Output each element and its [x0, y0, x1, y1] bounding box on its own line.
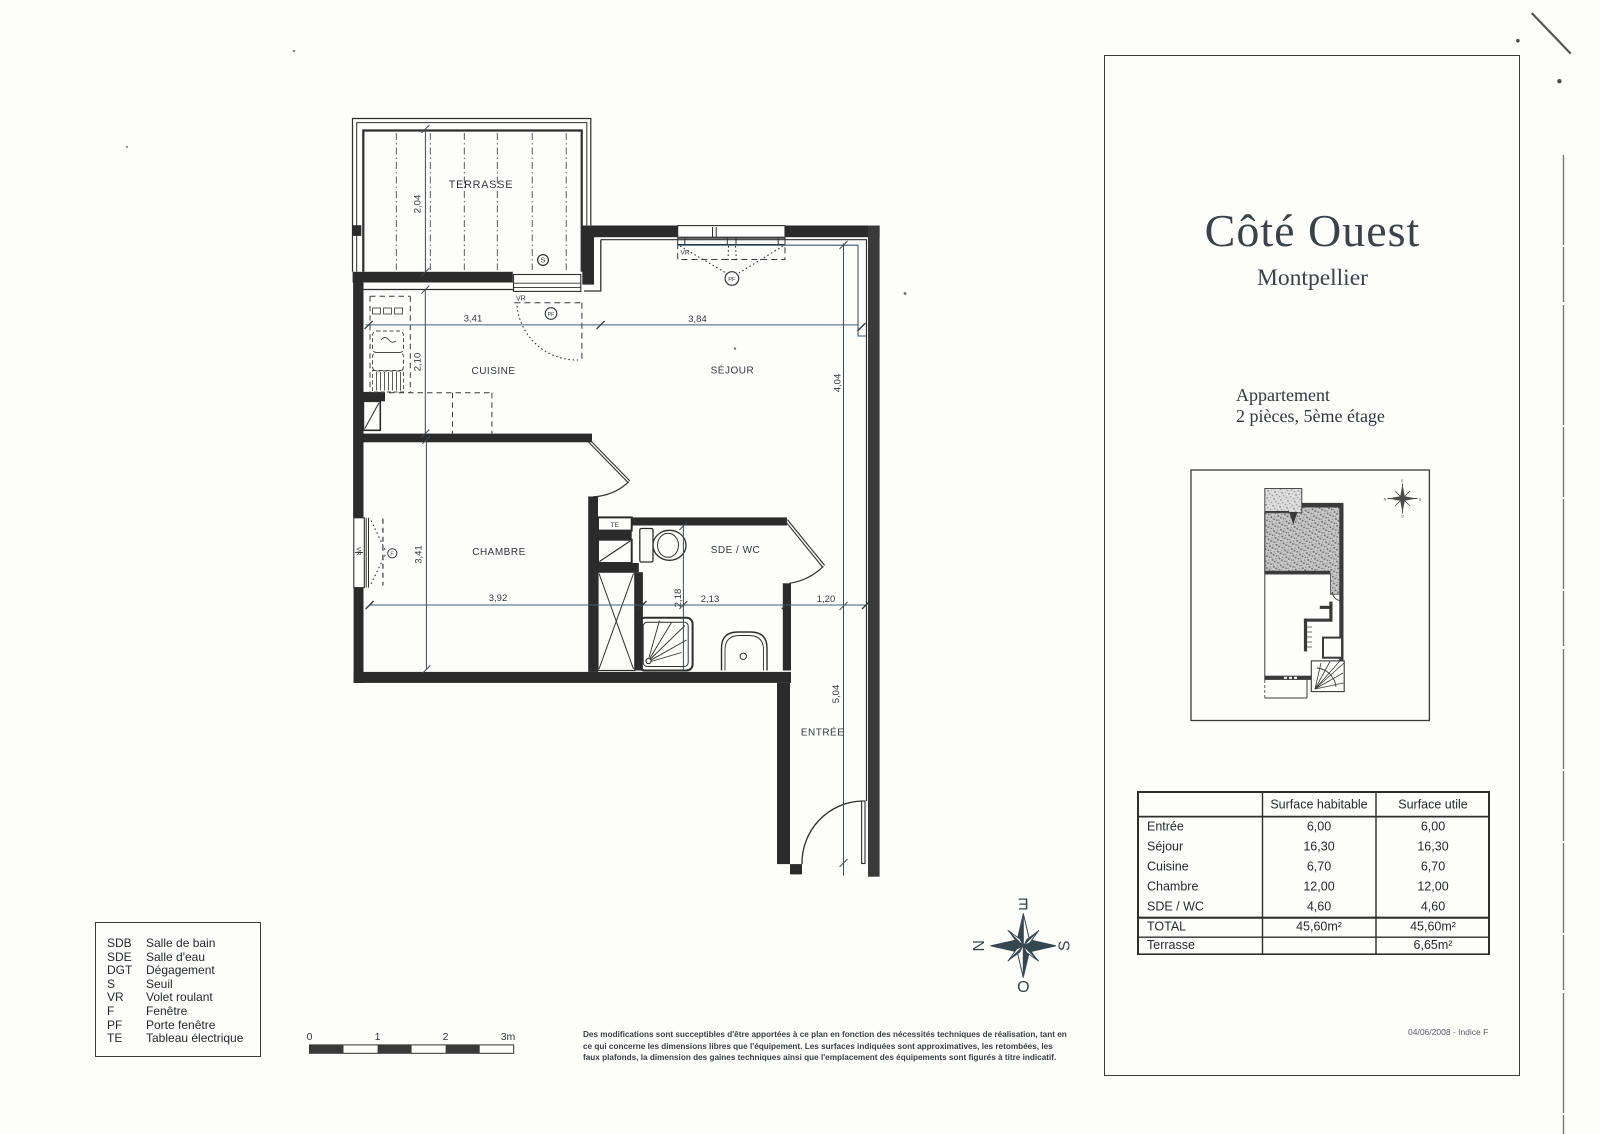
svg-text:S: S [1057, 940, 1074, 951]
svg-text:VR: VR [516, 296, 526, 303]
svg-text:12,00: 12,00 [1303, 880, 1334, 894]
svg-text:0: 0 [307, 1031, 313, 1043]
svg-text:6,00: 6,00 [1307, 820, 1331, 834]
svg-text:N: N [969, 940, 986, 952]
svg-text:Surface utile: Surface utile [1398, 798, 1468, 812]
svg-text:2,18: 2,18 [673, 589, 684, 608]
svg-text:F: F [390, 552, 393, 558]
svg-text:Chambre: Chambre [1147, 880, 1198, 894]
svg-text:45,60m²: 45,60m² [1410, 920, 1456, 934]
svg-text:6,70: 6,70 [1307, 860, 1331, 874]
svg-text:TOTAL: TOTAL [1147, 920, 1186, 934]
svg-text:CHAMBRE: CHAMBRE [472, 547, 526, 558]
svg-text:S: S [541, 258, 546, 265]
svg-text:6,65m²: 6,65m² [1414, 938, 1453, 952]
svg-text:5,04: 5,04 [831, 685, 842, 704]
svg-text:12,00: 12,00 [1417, 880, 1448, 894]
svg-text:1: 1 [375, 1031, 381, 1043]
svg-text:PF: PF [728, 277, 736, 283]
svg-text:Terrasse: Terrasse [1147, 938, 1195, 952]
svg-text:6,00: 6,00 [1421, 820, 1445, 834]
svg-text:3,92: 3,92 [489, 593, 508, 604]
svg-text:2,10: 2,10 [412, 353, 423, 372]
svg-text:2,04: 2,04 [413, 195, 424, 214]
svg-text:3,41: 3,41 [414, 545, 425, 564]
svg-text:TE: TE [611, 522, 620, 529]
svg-text:4,60: 4,60 [1307, 900, 1331, 914]
svg-text:16,30: 16,30 [1303, 840, 1334, 854]
svg-text:SDE / WC: SDE / WC [711, 545, 761, 556]
svg-text:4,04: 4,04 [833, 374, 844, 393]
svg-text:Séjour: Séjour [1147, 840, 1183, 854]
svg-text:3,84: 3,84 [688, 314, 707, 325]
svg-text:3,41: 3,41 [464, 314, 483, 325]
svg-text:SDE / WC: SDE / WC [1147, 900, 1204, 914]
svg-text:O: O [1017, 979, 1029, 996]
svg-text:45,60m²: 45,60m² [1296, 920, 1342, 934]
svg-text:TERRASSE: TERRASSE [449, 179, 514, 191]
svg-text:ENTRÉE: ENTRÉE [801, 726, 845, 739]
svg-text:6,70: 6,70 [1421, 860, 1445, 874]
svg-text:16,30: 16,30 [1417, 840, 1448, 854]
svg-text:Entrée: Entrée [1147, 820, 1184, 834]
svg-text:3m: 3m [501, 1031, 516, 1043]
svg-text:VR: VR [355, 547, 362, 556]
svg-text:2,13: 2,13 [701, 594, 720, 605]
svg-text:PF: PF [548, 312, 555, 318]
svg-text:Cuisine: Cuisine [1147, 860, 1189, 874]
svg-text:E: E [1018, 895, 1029, 912]
svg-text:SÉJOUR: SÉJOUR [711, 364, 755, 377]
svg-text:CUISINE: CUISINE [471, 366, 515, 377]
svg-text:4,60: 4,60 [1421, 900, 1445, 914]
svg-text:2: 2 [443, 1031, 449, 1043]
svg-text:1,20: 1,20 [817, 594, 836, 605]
svg-text:Surface habitable: Surface habitable [1270, 798, 1367, 812]
